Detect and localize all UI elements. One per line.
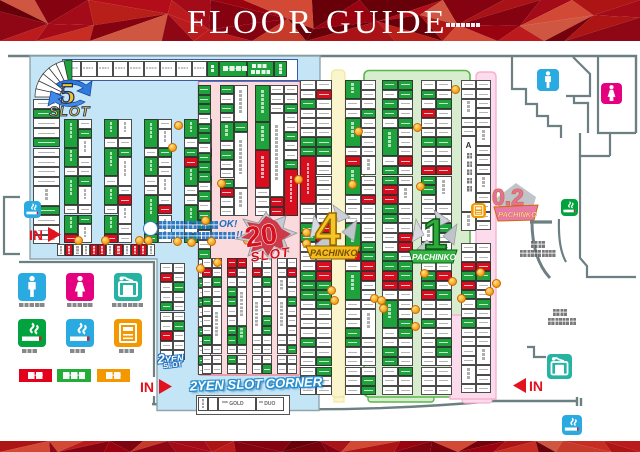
svg-text:IN: IN [529, 378, 543, 394]
svg-text:IN: IN [29, 227, 43, 243]
svg-text:IN: IN [140, 379, 154, 395]
svg-text:PACHINKO: PACHINKO [310, 248, 357, 258]
svg-text:SLOT: SLOT [49, 103, 91, 118]
svg-text:PACHINKO: PACHINKO [412, 252, 457, 262]
svg-text:PACHINKO: PACHINKO [498, 210, 537, 219]
